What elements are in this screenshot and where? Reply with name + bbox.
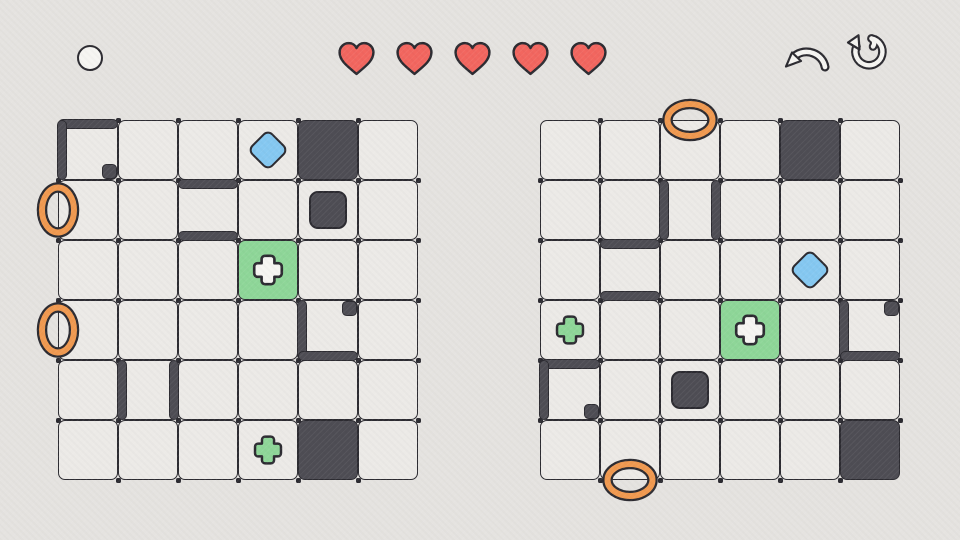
goal-cell-r3c4[interactable] [238,240,298,300]
cell-r4c3[interactable] [178,300,238,360]
restart-button[interactable] [845,29,889,79]
wall-nub-r5c1 [584,404,599,419]
grid-junction-dot [356,238,361,243]
heart-icon [336,40,377,77]
life-heart [568,40,609,82]
grid-junction-dot [838,118,843,123]
cell-r2c2[interactable] [600,180,660,240]
grid-junction-dot [718,478,723,483]
grid-junction-dot [356,118,361,123]
cell-r2c1[interactable] [540,180,600,240]
cell-r6c5[interactable] [780,420,840,480]
cell-r5c2[interactable] [600,360,660,420]
wall-left-r5c1 [539,360,549,420]
cell-r1c3[interactable] [178,120,238,180]
grid-junction-dot [116,178,121,183]
heart-icon [568,40,609,77]
cell-r3c1[interactable] [540,240,600,300]
undo-curved-arrow-icon [782,42,830,74]
grid-junction-dot [356,178,361,183]
portal-ring [36,301,80,364]
grid-junction-dot [416,178,421,183]
white-plus-icon [733,313,767,347]
cell-r4c2[interactable] [600,300,660,360]
cell-r3c5[interactable] [298,240,358,300]
grid-junction-dot [296,178,301,183]
grid-junction-dot [718,418,723,423]
grid-junction-dot [778,358,783,363]
grid-junction-dot [356,298,361,303]
cell-r3c6[interactable] [840,240,900,300]
grid-junction-dot [898,298,903,303]
level-token-circle [77,45,103,71]
grid-junction-dot [356,418,361,423]
wall-left-r2c3 [659,180,669,240]
cell-r5c3[interactable] [178,360,238,420]
grid-junction-dot [778,178,783,183]
cell-r4c2[interactable] [118,300,178,360]
wall-left-r1c1 [57,120,67,180]
grid-junction-dot [778,478,783,483]
life-heart [336,40,377,82]
cell-r3c4[interactable] [720,240,780,300]
wall-top-r5c1 [540,359,600,369]
white-plus-icon [251,253,285,287]
grid-junction-dot [538,298,543,303]
wall-right-r5c2 [169,360,179,420]
grid-junction-dot [56,418,61,423]
heart-icon [394,40,435,77]
heart-icon [452,40,493,77]
cell-r2c4[interactable] [720,180,780,240]
grid-junction-dot [538,178,543,183]
grid-junction-dot [296,118,301,123]
grid-junction-dot [236,118,241,123]
cell-r1c2[interactable] [600,120,660,180]
grid-junction-dot [416,238,421,243]
grid-junction-dot [236,478,241,483]
cell-r6c1[interactable] [58,420,118,480]
portal-ring-icon [661,98,719,142]
grid-junction-dot [778,118,783,123]
wall-cell-r1c5 [298,120,358,180]
cell-r5c6[interactable] [840,360,900,420]
life-heart [394,40,435,82]
grid-junction-dot [296,418,301,423]
lives-hearts [336,40,609,82]
wall-bottom-r4c5 [298,351,358,361]
grid-junction-dot [416,418,421,423]
portal-ring-icon [36,181,80,239]
grid-junction-dot [116,298,121,303]
grid-junction-dot [296,478,301,483]
cell-r2c4[interactable] [238,180,298,240]
goal-cell-r4c4[interactable] [720,300,780,360]
cell-r1c4[interactable] [720,120,780,180]
cell-r5c5[interactable] [780,360,840,420]
portal-ring [661,98,719,147]
cell-r3c2[interactable] [118,240,178,300]
undo-button[interactable] [782,42,830,74]
wall-top-r1c1 [58,119,118,129]
cell-r2c2[interactable] [118,180,178,240]
grid-junction-dot [778,238,783,243]
block-r5c3 [671,371,709,409]
portal-ring-icon [601,458,659,502]
grid-junction-dot [116,238,121,243]
wall-cell-r1c5 [780,120,840,180]
cell-r1c1[interactable] [540,120,600,180]
cell-r5c1[interactable] [58,360,118,420]
grid-junction-dot [416,298,421,303]
restart-circular-arrow-icon [845,29,889,79]
cell-r6c4[interactable] [720,420,780,480]
wall-bottom-r4c6 [840,351,900,361]
green-plus-icon [554,314,586,346]
portal-ring-icon [36,301,80,359]
grid-junction-dot [176,298,181,303]
grid-junction-dot [898,418,903,423]
grid-junction-dot [898,238,903,243]
grid-junction-dot [838,478,843,483]
cell-r4c3[interactable] [660,300,720,360]
wall-top-r2c3 [178,179,238,189]
grid-junction-dot [176,118,181,123]
grid-junction-dot [236,358,241,363]
cell-r3c6[interactable] [358,240,418,300]
grid-junction-dot [778,298,783,303]
cell-r5c5[interactable] [298,360,358,420]
cell-r3c3[interactable] [660,240,720,300]
wall-top-r3c2 [600,239,660,249]
grid-junction-dot [538,238,543,243]
cell-r1c2[interactable] [118,120,178,180]
wall-bottom-r2c3 [178,231,238,241]
wall-nub-r1c1 [102,164,117,179]
grid-junction-dot [718,298,723,303]
grid-junction-dot [598,418,603,423]
green-plus-icon [252,434,284,466]
grid-junction-dot [838,178,843,183]
grid-junction-dot [236,418,241,423]
board-right[interactable] [540,120,900,480]
grid-junction-dot [116,478,121,483]
grid-junction-dot [598,118,603,123]
wall-nub-r4c5 [342,301,357,316]
heart-icon [510,40,551,77]
wall-left-r5c2 [117,360,127,420]
grid-junction-dot [838,238,843,243]
wall-right-r2c3 [711,180,721,240]
wall-bottom-r3c2 [600,291,660,301]
cell-r1c6[interactable] [358,120,418,180]
cell-r5c4[interactable] [238,360,298,420]
cell-r2c5[interactable] [780,180,840,240]
life-heart [510,40,551,82]
board-left[interactable] [58,120,418,480]
portal-ring [601,458,659,507]
cell-r5c6[interactable] [358,360,418,420]
wall-nub-r4c6 [884,301,899,316]
grid-junction-dot [658,418,663,423]
green-plus-pickup-r6c4 [252,434,284,466]
wall-cell-r6c5 [298,420,358,480]
wall-cell-r6c6 [840,420,900,480]
block-r2c5 [309,191,347,229]
grid-junction-dot [236,298,241,303]
grid-junction-dot [898,178,903,183]
grid-junction-dot [658,358,663,363]
cell-r1c6[interactable] [840,120,900,180]
grid-junction-dot [718,358,723,363]
portal-ring [36,181,80,244]
grid-junction-dot [176,478,181,483]
grid-junction-dot [838,418,843,423]
cell-r5c4[interactable] [720,360,780,420]
grid-junction-dot [296,238,301,243]
green-plus-pickup-r4c1 [554,314,586,346]
grid-junction-dot [416,358,421,363]
cell-r6c3[interactable] [660,420,720,480]
cell-r6c1[interactable] [540,420,600,480]
grid-junction-dot [778,418,783,423]
grid-junction-dot [356,478,361,483]
cell-r2c6[interactable] [840,180,900,240]
cell-r4c6[interactable] [358,300,418,360]
cell-r6c2[interactable] [118,420,178,480]
cell-r3c3[interactable] [178,240,238,300]
cell-r6c3[interactable] [178,420,238,480]
cell-r4c4[interactable] [238,300,298,360]
cell-r3c1[interactable] [58,240,118,300]
cell-r4c5[interactable] [780,300,840,360]
cell-r2c6[interactable] [358,180,418,240]
grid-junction-dot [598,178,603,183]
life-heart [452,40,493,82]
cell-r6c6[interactable] [358,420,418,480]
